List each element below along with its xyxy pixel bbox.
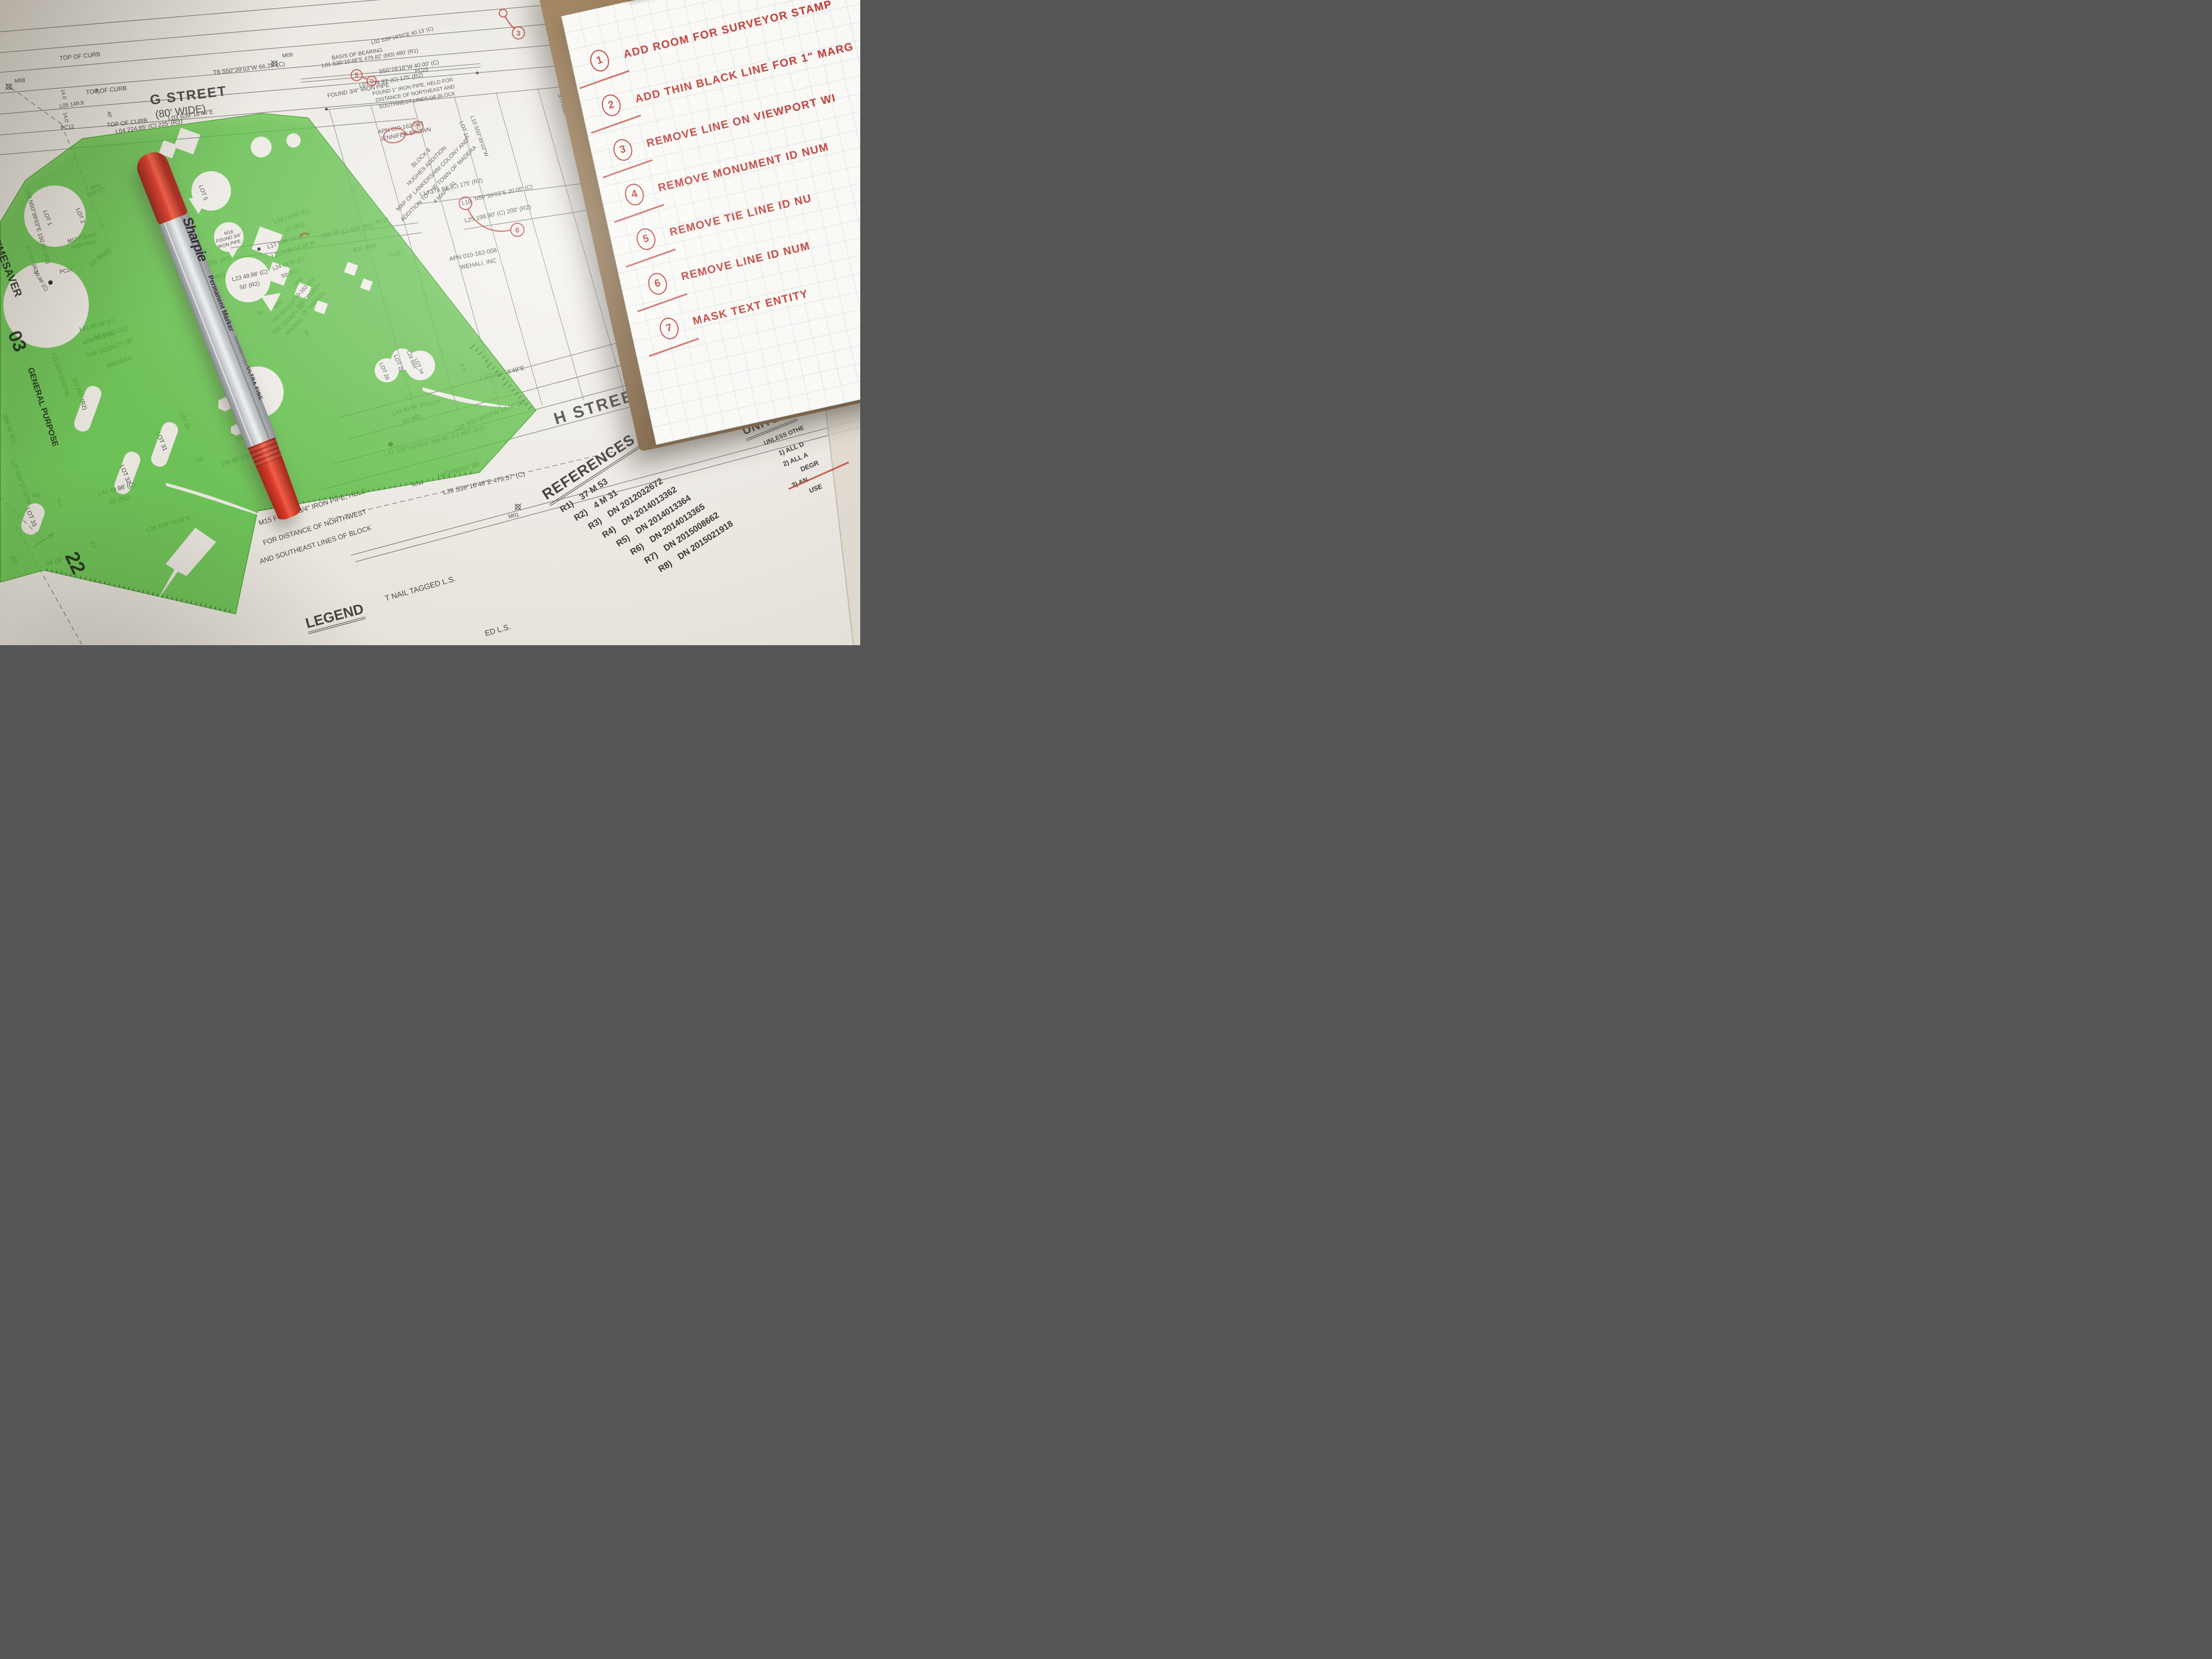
map-label: M08	[14, 78, 25, 84]
map-label: T NAIL TAGGED L.S.	[384, 574, 456, 602]
map-label: T8 S50°39'03"W 66.25' (C)	[213, 61, 285, 77]
map-label: S50°28'18"W 40.00' (C)	[379, 60, 439, 75]
map-label: L35 S39°16'48"E	[146, 515, 191, 534]
map-label: 399.78' (C) 400' (R2)	[320, 223, 374, 240]
map-label: (80' WIDE)	[155, 104, 206, 121]
map-label: 50' (R2)	[93, 330, 115, 341]
map-label: M13 FOUND	[67, 232, 98, 245]
map-label: (C) 320' (R2)	[25, 245, 39, 275]
map-label: HUGHES ADDITION	[406, 145, 448, 188]
map-label: 40'	[94, 88, 100, 95]
map-label: MADERA	[285, 317, 305, 336]
map-label: THE COUNTY OF	[86, 338, 134, 360]
map-label: APN	[294, 277, 305, 289]
map-label: L14 174.93' (C) 175' (R2)	[419, 177, 483, 198]
map-label: 19.98' (C)	[32, 270, 48, 292]
map-label: APN 010-162-008	[449, 247, 498, 263]
note-number-circle: 4	[622, 182, 646, 208]
map-label: ALLEY	[95, 246, 112, 260]
map-label: M01	[508, 512, 520, 520]
map-label: L03 S39°16'48"E	[168, 109, 214, 122]
pen-front-cap	[247, 437, 306, 523]
map-label: M09	[282, 53, 294, 60]
map-label: G STREET	[149, 84, 228, 108]
map-label: 40'	[106, 111, 112, 119]
map-label: L37 S39°16'48"E 399.60' (C) 400' (R2)	[384, 425, 486, 458]
map-label: L11 S50°39'03"W	[50, 352, 70, 397]
map-label: N50°39'03"E 20.00' (C)	[474, 184, 533, 202]
circled-annotation-6: 6	[510, 223, 524, 237]
map-label: L13 74.90' (C)	[273, 208, 309, 225]
map-label: APN	[273, 300, 284, 311]
map-label: HIGHWAY 99	[437, 460, 480, 480]
map-label: LEGEND	[304, 601, 366, 634]
map-label: APN 010-162-003	[377, 121, 424, 136]
circled-annotation-T9: T9	[366, 76, 377, 86]
annotation-circle	[459, 196, 472, 210]
map-label: 50' (R2)	[109, 495, 131, 506]
map-label: LOT 24	[413, 358, 424, 375]
map-label: 75' (R2)	[284, 222, 306, 234]
map-label: TOP OF CURB	[59, 52, 101, 62]
map-label: LOT 32	[118, 464, 131, 485]
map-label: L36 S39°16'48"E	[479, 365, 526, 382]
map-label: 400' (R2)	[352, 243, 376, 254]
map-label: 40'	[32, 491, 42, 499]
note-number-circle: 1	[588, 48, 612, 74]
map-label: SOUTHWEST LINES OF BLOCK	[379, 91, 456, 110]
map-label: LOT 5	[198, 184, 208, 201]
note-number-circle: 3	[611, 137, 635, 163]
map-label: 8.0'	[459, 363, 466, 373]
map-label: L02 S39°18'50"E 40.13' (C)	[371, 26, 434, 46]
map-label: 4 MAPS 31	[432, 180, 457, 205]
map-label: FOUND 3/4"	[216, 233, 242, 244]
map-label: L25 199.90' (C) 200' (R2)	[464, 204, 532, 224]
pen-back-cap	[133, 148, 188, 225]
map-label: ED L.S.	[484, 623, 511, 637]
map-label: IRON PIPE	[217, 239, 241, 250]
map-label: 14.0'	[60, 89, 67, 100]
map-label: 010-162-009	[291, 277, 316, 302]
map-label: L34 49.94' (C)	[392, 400, 428, 417]
map-label: OF MADERA	[301, 291, 327, 317]
map-label: L21 49.98' (C)	[79, 318, 116, 333]
map-label: 50' (R2)	[281, 269, 300, 280]
map-label: L31 49.98' (C)	[98, 482, 136, 498]
map-label: 399.98' (C)	[1, 414, 16, 444]
map-label: THE COUNTY OF	[272, 303, 306, 336]
map-label: L05 149.9	[59, 100, 84, 110]
map-label: THE CO	[86, 187, 106, 199]
map-label: LOT 1	[42, 210, 53, 227]
annotation-circle	[382, 126, 407, 145]
map-label: L10 S50°39'03"W	[469, 115, 489, 157]
map-label: BLOCK 8	[410, 147, 432, 168]
circled-annotation-3: 3	[512, 26, 525, 39]
map-label: APN 010-162-012	[81, 325, 129, 347]
note-number-circle: 7	[657, 315, 681, 342]
map-label: L27 S50°37'12"W	[9, 459, 31, 505]
map-label: 010-162-010	[271, 300, 296, 324]
clipboard[interactable]: 1ADD ROOM FOR SURVEYOR STAMP2ADD THIN BL…	[540, 0, 860, 456]
map-label: 14.0'	[62, 112, 69, 123]
map-label: ADDITION TO THE TOWN OF MADERA	[400, 145, 478, 223]
map-label: (C) 150' (R2)	[72, 377, 88, 411]
map-label: LOT 33	[24, 507, 37, 528]
map-label: TOP OF CURB	[106, 118, 148, 129]
map-label: L23 49.98' (C)	[232, 269, 268, 283]
map-label: 3/8	[257, 310, 264, 316]
map-label: 8.0'	[89, 541, 97, 550]
map-label: PC17	[375, 218, 389, 226]
map-label: (C)	[9, 555, 18, 565]
map-label: JENNIFER BROWN	[380, 127, 432, 143]
map-label: R/W	[411, 479, 425, 489]
map-label: PC14	[59, 267, 73, 275]
sharpie-pen[interactable]: Sharpie Permanent Marker ULTRA FINE Asse…	[133, 148, 306, 523]
map-label: DISTANCE OF NORTHEAST AND	[375, 84, 455, 104]
map-label: MAP OF LANKERSHIM COLONY AND	[395, 137, 470, 212]
map-label: L32	[194, 456, 204, 464]
map-label: 50' (R2)	[402, 414, 423, 426]
note-number-circle: 2	[599, 92, 623, 119]
map-label: L38 S50°39'03"W 44.00' (C)	[454, 399, 527, 433]
map-label: IRON PIPE	[70, 239, 97, 251]
map-label: (20' WIDE)	[89, 249, 113, 268]
desk-photo-scene: TOP OF CURBTOP OF CURBG STREET(80' WIDE)…	[0, 0, 860, 645]
map-label: PC12	[60, 125, 75, 132]
circled-annotation-7: 7	[411, 121, 424, 133]
map-label: APN	[90, 183, 102, 192]
map-label: TOP OF CURB	[86, 86, 127, 96]
map-label: PC19	[427, 399, 441, 408]
map-label: L39 S39°16'48"E 479.57' (C)	[442, 471, 526, 496]
map-label: L04 224.85' (C) 225' (R2)	[115, 119, 183, 136]
map-label: PC18	[387, 251, 401, 259]
map-label: FOUND 3/4" IRON PIPE	[327, 82, 390, 99]
template-print-label: 22	[61, 549, 89, 577]
map-label: LOT 30	[178, 410, 190, 430]
map-label: 50' (R2)	[239, 281, 261, 291]
map-label: L17 N39°16'48"W	[267, 230, 312, 250]
map-label: PC23	[415, 67, 428, 75]
template-print-label: 03	[4, 328, 30, 354]
map-label: 3/8	[303, 329, 309, 336]
map-label: LOT 25	[392, 354, 404, 374]
template-print-label: GENERAL PURPOSE	[26, 366, 60, 448]
map-label: LOT 16	[458, 121, 469, 140]
map-label: 14.0'	[55, 497, 64, 509]
map-label: L01 S39°16'48"E 479.82' (M3) 480' (R1)	[321, 48, 419, 69]
map-label: AND SOUTHEAST LINES OF BLOCK	[259, 524, 373, 566]
pen-origin-text: Assembled in USA	[207, 336, 248, 377]
revision-notes-list: 1ADD ROOM FOR SURVEYOR STAMP2ADD THIN BL…	[561, 0, 860, 365]
annotation-circle	[499, 9, 507, 18]
note-number-circle: 6	[646, 270, 670, 297]
map-label: WEHALI, INC	[460, 258, 497, 271]
map-label: L29 S50°	[405, 350, 418, 371]
map-label: L20 N39°16'48"W	[271, 240, 316, 259]
map-label: L18	[461, 199, 472, 206]
circled-annotation-5: 5	[351, 69, 363, 81]
pen-type-text: Permanent Marker	[184, 274, 235, 342]
map-label: LOT 31	[154, 431, 167, 452]
map-label: L07 174.93' (C) 175' (R2)	[359, 72, 424, 89]
pen-barrel: Sharpie Permanent Marker ULTRA FINE Asse…	[159, 213, 276, 449]
map-label: FOUND 1" IRON PIPE, HELD FOR	[372, 77, 454, 97]
map-label: LOT 26	[377, 362, 390, 381]
map-label: M16	[224, 229, 234, 236]
map-label: THE COUNTY	[295, 283, 323, 311]
map-label: 44.00' (C)	[45, 553, 75, 567]
map-label: BASIS OF BEARING	[331, 48, 383, 61]
map-label: L08 N50°39'03"E 150.00' (R2)	[24, 189, 50, 264]
map-label: MADERA	[106, 356, 133, 370]
map-label: 250' (R2)	[207, 256, 232, 267]
note-number-circle: 5	[634, 226, 658, 252]
map-label: LOT 2	[75, 207, 86, 224]
template-print-label: TIMESAVER	[0, 236, 24, 299]
pen-brand-logo: Sharpie	[164, 215, 211, 269]
map-label: L24 49.94' (C)	[272, 256, 305, 272]
